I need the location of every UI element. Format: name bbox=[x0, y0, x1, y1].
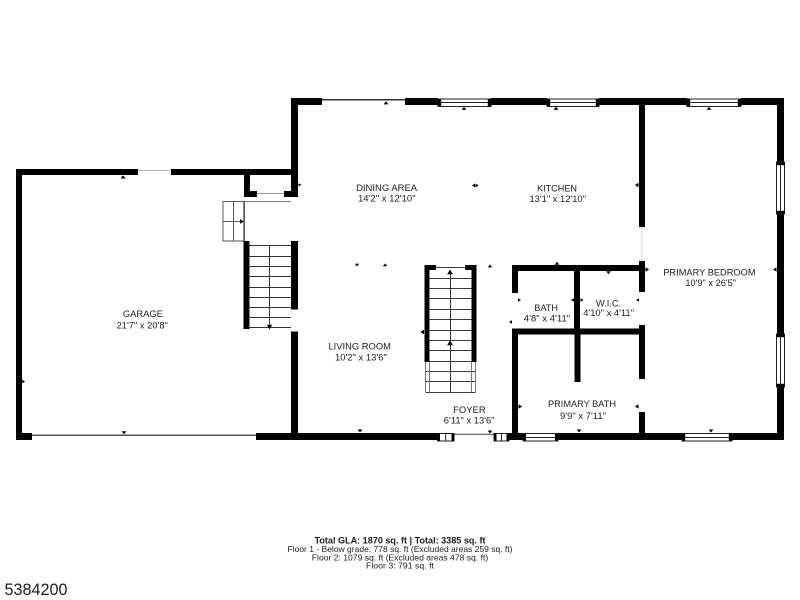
svg-text:13'1" x 12'10": 13'1" x 12'10" bbox=[529, 194, 586, 205]
svg-text:PRIMARY BEDROOM: PRIMARY BEDROOM bbox=[663, 268, 755, 279]
svg-text:6'11" x 13'6": 6'11" x 13'6" bbox=[444, 416, 495, 427]
svg-text:9'9" x 7'11": 9'9" x 7'11" bbox=[560, 411, 606, 422]
svg-text:BATH: BATH bbox=[534, 303, 558, 314]
svg-text:PRIMARY BATH: PRIMARY BATH bbox=[548, 399, 616, 410]
svg-text:Floor 3: 791 sq. ft: Floor 3: 791 sq. ft bbox=[366, 560, 435, 570]
svg-text:5384200: 5384200 bbox=[5, 581, 68, 599]
svg-text:4'10" x 4'11": 4'10" x 4'11" bbox=[583, 308, 634, 319]
svg-text:LIVING ROOM: LIVING ROOM bbox=[328, 342, 391, 353]
svg-text:10'9" x 26'5": 10'9" x 26'5" bbox=[685, 278, 736, 289]
svg-text:GARAGE: GARAGE bbox=[123, 309, 163, 320]
svg-text:4'8" x 4'11": 4'8" x 4'11" bbox=[524, 314, 570, 325]
svg-text:10'2" x 13'6": 10'2" x 13'6" bbox=[335, 353, 387, 364]
svg-text:21'7" x 20'8": 21'7" x 20'8" bbox=[117, 320, 168, 331]
svg-text:14'2" x 12'10": 14'2" x 12'10" bbox=[358, 194, 416, 205]
svg-text:DINING AREA: DINING AREA bbox=[356, 183, 418, 194]
svg-text:FOYER: FOYER bbox=[453, 405, 486, 416]
